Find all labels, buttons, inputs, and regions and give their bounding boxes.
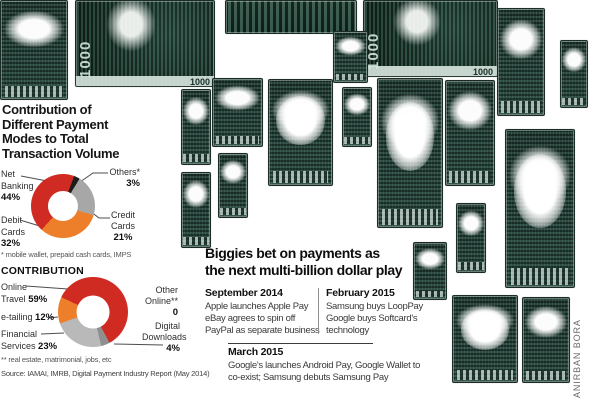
timeline-column-february-2015: February 2015 Samsung buys LoopPay Googl… (326, 287, 431, 337)
label-online-travel: Online Travel 59% (1, 281, 47, 306)
chart-title-line: Different Payment (2, 118, 119, 133)
note-denomination: 1000 (190, 77, 210, 87)
label-debit-cards: Debit Cards 32% (1, 214, 25, 250)
label-other-online: Other Online** 0 (140, 285, 178, 318)
infographic-canvas: 1000 1000 1000 1000 Contribution of D (0, 0, 600, 402)
value-others: 3% (103, 178, 140, 189)
donut-chart-contribution (58, 277, 128, 347)
label-etailing: e-tailing 12% (1, 311, 54, 324)
label-credit-cards: Credit Cards 21% (106, 210, 140, 243)
banknote (456, 203, 486, 273)
column-divider (318, 288, 319, 334)
chart-title-line: Contribution of (2, 103, 119, 118)
story-headline: Biggies bet on payments as the next mult… (205, 245, 402, 278)
banknote (452, 295, 518, 383)
chart-title-line: Modes to Total (2, 132, 119, 147)
banknote (342, 87, 372, 147)
value-net-banking: 44% (1, 192, 34, 204)
value-other-online: 0 (140, 307, 178, 318)
footnote-real-estate: ** real estate, matrimonial, jobs, etc (1, 355, 111, 364)
value-etailing: 12% (35, 312, 54, 323)
contribution-section-title: CONTRIBUTION (1, 265, 84, 277)
banknote (505, 129, 575, 288)
label-others: Others* 3% (103, 167, 140, 189)
banknote (218, 153, 248, 218)
banknote (560, 40, 588, 108)
banknote (212, 78, 263, 147)
march-section-rule (228, 343, 373, 344)
label-financial-services: Financial Services 23% (1, 328, 57, 353)
donut-chart-payment-modes (31, 174, 95, 238)
timeline-heading: March 2015 (228, 346, 443, 358)
footnote-mobile-wallet: * mobile wallet, prepaid cash cards, IMP… (1, 250, 131, 259)
source-line: Source: IAMAI, IMRB, Digital Payment Ind… (1, 369, 209, 378)
chart-title-line: Transaction Volume (2, 147, 119, 162)
value-credit-cards: 21% (106, 232, 140, 243)
timeline-column-september-2014: September 2014 Apple launches Apple Pay … (205, 287, 320, 337)
value-digital-downloads: 4% (142, 343, 180, 354)
value-financial-services: 23% (38, 341, 57, 352)
banknote (225, 0, 357, 34)
timeline-heading: February 2015 (326, 287, 431, 299)
banknote (522, 297, 570, 383)
banknote: 1000 1000 (75, 0, 215, 87)
banknote (181, 89, 211, 165)
banknote (268, 79, 333, 186)
banknote: 1000 1000 (363, 0, 498, 77)
timeline-heading: September 2014 (205, 287, 320, 299)
banknote (445, 80, 495, 186)
timeline-column-march-2015: March 2015 Google's launches Android Pay… (228, 346, 443, 384)
value-online-travel: 59% (28, 294, 47, 305)
note-denomination: 1000 (77, 41, 94, 78)
banknote (497, 8, 545, 116)
artist-credit: ANIRBAN BORA (572, 296, 582, 398)
banknote (0, 0, 68, 100)
banknote (333, 31, 368, 83)
chart-title: Contribution of Different Payment Modes … (2, 103, 119, 161)
label-digital-downloads: Digital Downloads 4% (142, 321, 180, 354)
banknote (377, 78, 443, 228)
banknote (181, 172, 211, 248)
note-denomination: 1000 (473, 67, 493, 77)
label-net-banking: Net Banking 44% (1, 168, 34, 204)
value-debit-cards: 32% (1, 238, 25, 250)
